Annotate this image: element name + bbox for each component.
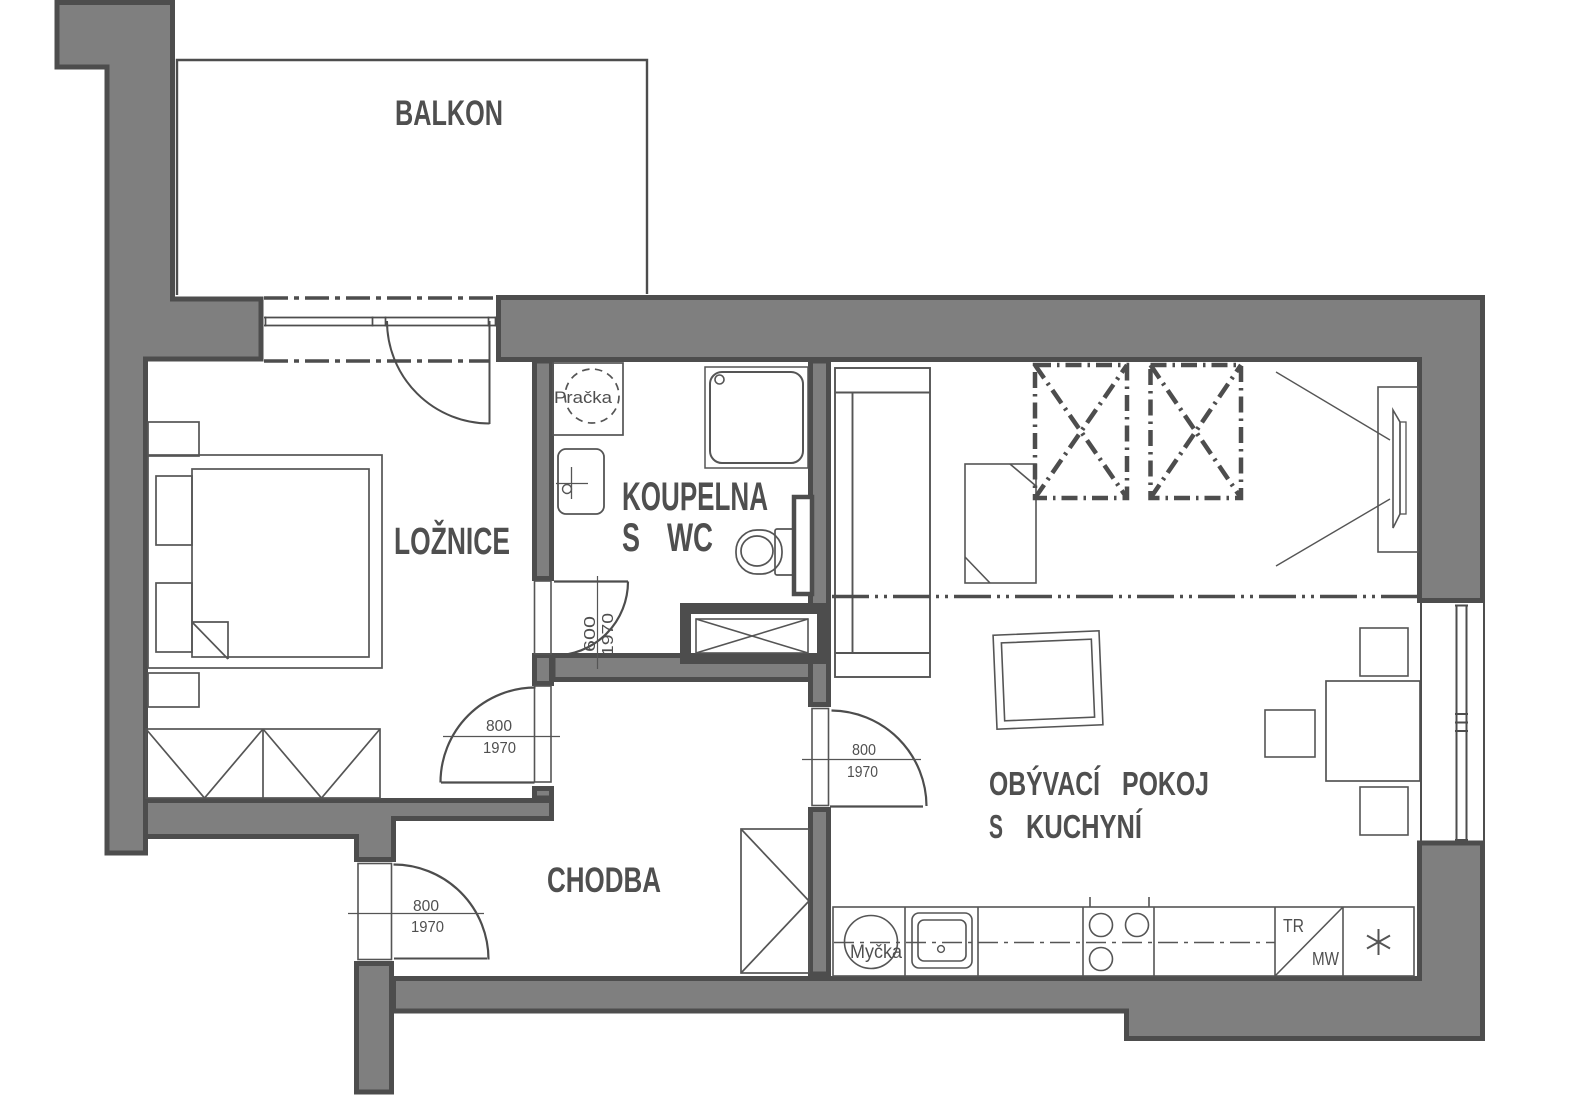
svg-text:1970: 1970 xyxy=(483,740,516,757)
svg-text:POKOJ: POKOJ xyxy=(1122,765,1209,802)
svg-text:800: 800 xyxy=(413,898,439,915)
svg-text:MW: MW xyxy=(1312,949,1339,969)
svg-text:1970: 1970 xyxy=(600,613,617,656)
svg-text:CHODBA: CHODBA xyxy=(547,861,661,900)
svg-text:Myčka: Myčka xyxy=(850,942,902,963)
svg-text:KUCHYNÍ: KUCHYNÍ xyxy=(1026,808,1143,845)
svg-text:S: S xyxy=(622,516,640,560)
svg-text:LOŽNICE: LOŽNICE xyxy=(394,519,510,563)
svg-text:1970: 1970 xyxy=(847,764,878,781)
svg-text:800: 800 xyxy=(486,718,512,735)
svg-text:TR: TR xyxy=(1283,916,1304,936)
svg-text:800: 800 xyxy=(852,742,876,759)
svg-text:BALKON: BALKON xyxy=(395,94,503,133)
svg-text:WC: WC xyxy=(667,516,713,560)
svg-text:OBÝVACÍ: OBÝVACÍ xyxy=(989,765,1101,802)
svg-text:KOUPELNA: KOUPELNA xyxy=(622,475,768,519)
svg-text:S: S xyxy=(989,808,1003,845)
svg-text:Pračka: Pračka xyxy=(554,388,613,407)
svg-text:1970: 1970 xyxy=(411,919,444,936)
svg-text:600: 600 xyxy=(582,615,599,652)
